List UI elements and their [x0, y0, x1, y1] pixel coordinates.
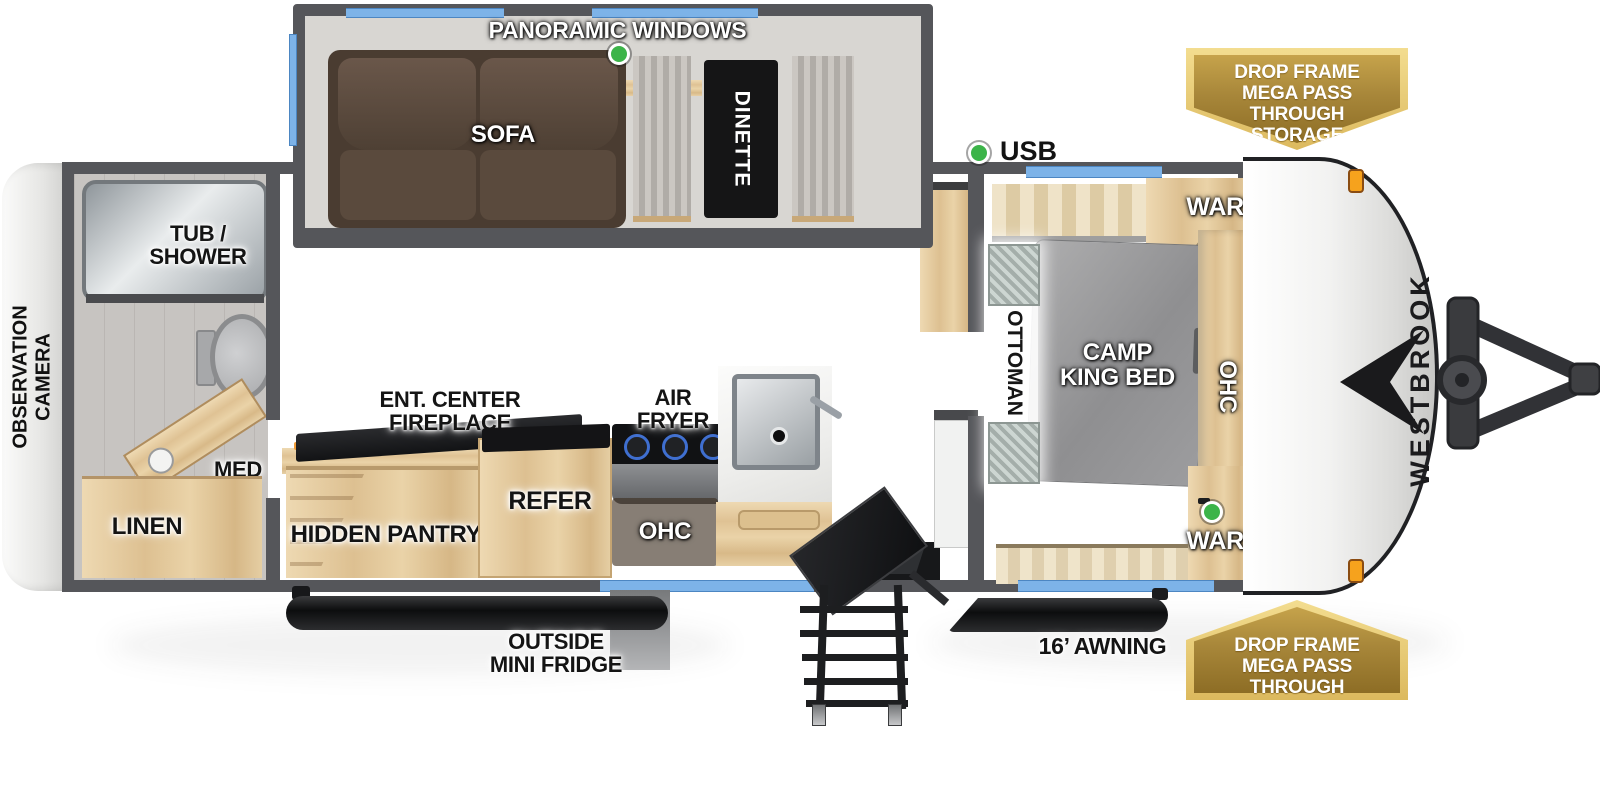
marker-light-icon — [1348, 169, 1364, 193]
hidden-pantry-label: HIDDEN PANTRY — [288, 522, 484, 547]
outside-mini-fridge-label: OUTSIDE MINI FRIDGE — [466, 630, 646, 676]
usb-indicator-dot — [1201, 501, 1223, 523]
bedroom-wall-upper — [968, 174, 984, 332]
observation-camera-line1: OBSERVATION — [10, 305, 33, 448]
bathroom-wall-lower — [266, 498, 280, 580]
observation-camera-label: OBSERVATION CAMERA — [0, 163, 66, 591]
bedroom-window-bottom — [1018, 580, 1214, 592]
usb-legend-label: USB — [1000, 136, 1080, 167]
sofa-seat-cushion — [340, 150, 476, 220]
linen-label: LINEN — [92, 514, 202, 539]
brand-label: WESTBROOK — [1405, 272, 1436, 487]
burner-icon — [624, 434, 650, 460]
step-rung — [800, 606, 908, 613]
camp-king-bed-label: CAMP KING BED — [1040, 340, 1195, 390]
bath-sink — [143, 443, 179, 479]
cutting-board — [738, 510, 820, 530]
sink-drain — [770, 427, 788, 445]
dinette-bench-right — [792, 56, 854, 222]
step-foot — [888, 704, 902, 726]
refer-label: REFER — [500, 488, 600, 514]
refrigerator-top — [482, 424, 610, 452]
step-foot — [812, 704, 826, 726]
sofa-seat-cushion — [480, 150, 616, 220]
step-rail — [894, 585, 906, 709]
dinette-table: DINETTE — [704, 60, 778, 218]
step-rung — [800, 630, 908, 637]
awning-roller-right — [948, 598, 1168, 632]
bed-head-shelf — [992, 184, 1146, 236]
panoramic-windows-label: PANORAMIC WINDOWS — [460, 18, 775, 42]
awning-label: 16’ AWNING — [1010, 634, 1195, 658]
observation-camera-line2: CAMERA — [33, 305, 56, 448]
bedroom-window-top — [1026, 166, 1162, 178]
awning-roller-left — [286, 596, 668, 630]
kitchen-sink — [732, 374, 820, 470]
bedroom-ohc-label-wrap: OHC — [1212, 352, 1242, 422]
ottoman-label-wrap: OTTOMAN — [1002, 290, 1026, 436]
burner-icon — [662, 434, 688, 460]
dinette-bench-left — [633, 56, 691, 222]
usb-indicator-dot — [608, 43, 630, 65]
ottoman-label: OTTOMAN — [1002, 310, 1026, 416]
dinette-label: DINETTE — [729, 91, 753, 188]
slide-window-left — [346, 8, 504, 18]
step-rail — [816, 585, 828, 709]
bathroom-wall-upper — [266, 174, 280, 420]
marker-light-icon — [1348, 559, 1364, 583]
tub-shower-label: TUB / SHOWER — [128, 222, 268, 268]
floorplan-canvas: OBSERVATION CAMERA TUB / SHOWER MED LINE… — [0, 0, 1600, 801]
usb-legend-dot — [968, 142, 990, 164]
sofa-label: SOFA — [453, 122, 553, 147]
storage-badge-top: DROP FRAME MEGA PASS THROUGH STORAGE — [1186, 48, 1408, 150]
bed-foot-dresser — [996, 544, 1188, 584]
slide-window-side — [289, 34, 297, 146]
hitch-assembly — [1432, 288, 1600, 488]
bedroom-wall-lower — [968, 416, 984, 580]
bedroom-ohc-label: OHC — [1214, 361, 1239, 413]
slide-out-step-edge — [293, 228, 933, 244]
tub-ledge — [86, 294, 264, 303]
ward-bottom-cabinet — [1188, 466, 1248, 580]
kitchen-ohc: OHC — [612, 498, 718, 566]
step-rung — [802, 654, 908, 661]
kitchen-ohc-label: OHC — [639, 519, 691, 544]
step-rung — [804, 678, 908, 685]
